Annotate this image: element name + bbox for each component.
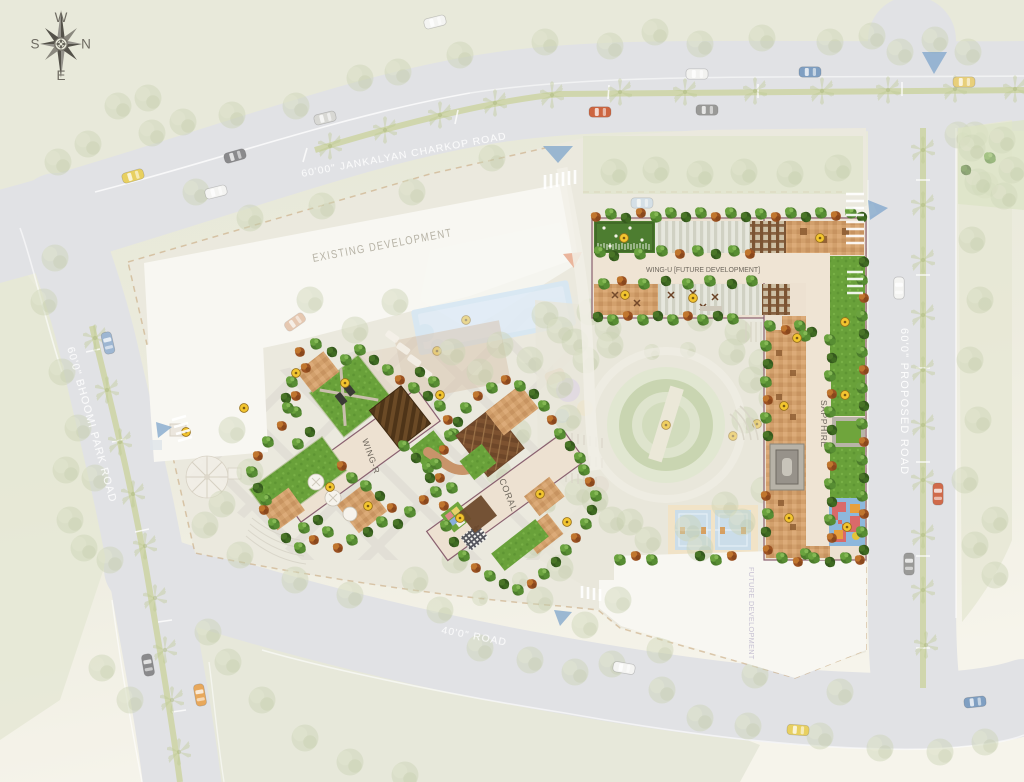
svg-text:60'0" PROPOSED ROAD: 60'0" PROPOSED ROAD: [898, 328, 910, 475]
svg-text:WING-U [FUTURE DEVELOPMENT]: WING-U [FUTURE DEVELOPMENT]: [646, 265, 760, 274]
svg-text:S: S: [30, 37, 39, 52]
svg-text:N: N: [81, 37, 91, 52]
svg-text:FUTURE DEVELOPMENT: FUTURE DEVELOPMENT: [747, 567, 756, 660]
svg-text:W: W: [55, 10, 68, 25]
svg-text:E: E: [56, 68, 65, 83]
